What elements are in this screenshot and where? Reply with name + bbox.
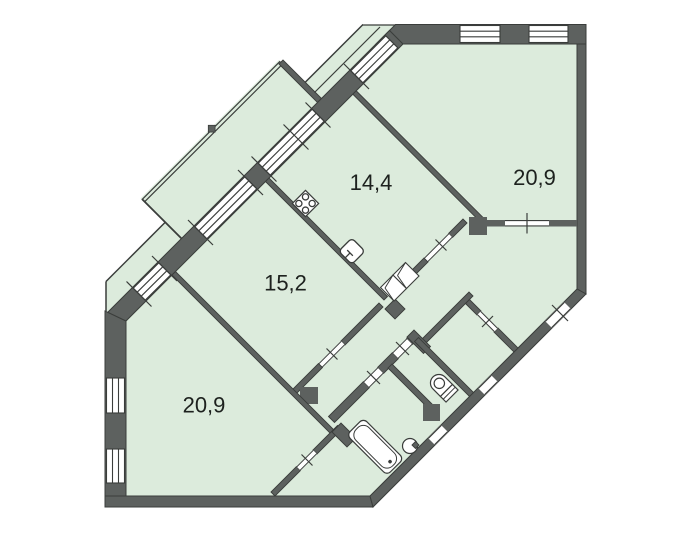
svg-text:20,9: 20,9 [513,165,556,190]
svg-text:14,4: 14,4 [350,170,393,195]
svg-text:15,2: 15,2 [264,271,307,296]
svg-text:20,9: 20,9 [183,393,226,418]
